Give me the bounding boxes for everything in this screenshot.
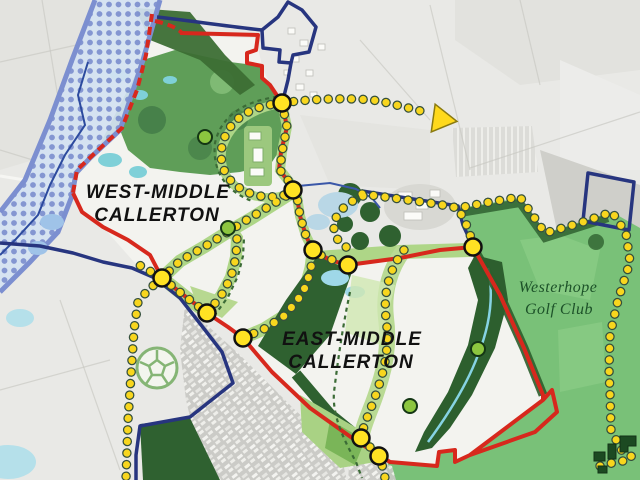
east-site-label-line1: EAST-MIDDLE [282,329,422,350]
green-space-marker [221,221,235,235]
masterplan-map: WEST-MIDDLE CALLERTON EAST-MIDDLE CALLER… [0,0,640,480]
route-node-marker [285,182,302,199]
football-pitch-icon [137,348,177,388]
farm-west-buildings [244,126,272,186]
green-space-marker [403,399,417,413]
route-node-marker [371,448,388,465]
green-space-marker [198,130,212,144]
route-node-marker [353,430,370,447]
route-node-marker [199,305,216,322]
route-node-marker [305,242,322,259]
golf-club-label-line1: Westerhope [519,279,598,296]
east-site-label-line2: CALLERTON [288,352,414,373]
golf-club-label-line2: Golf Club [525,301,593,318]
route-node-marker [235,330,252,347]
map-canvas: WEST-MIDDLE CALLERTON EAST-MIDDLE CALLER… [0,0,640,480]
green-space-marker [471,342,485,356]
route-node-marker [340,257,357,274]
west-site-label-line1: WEST-MIDDLE [86,182,230,203]
west-site-label-line2: CALLERTON [94,205,220,226]
route-node-marker [274,95,291,112]
route-node-marker [154,270,171,287]
route-node-marker [465,239,482,256]
